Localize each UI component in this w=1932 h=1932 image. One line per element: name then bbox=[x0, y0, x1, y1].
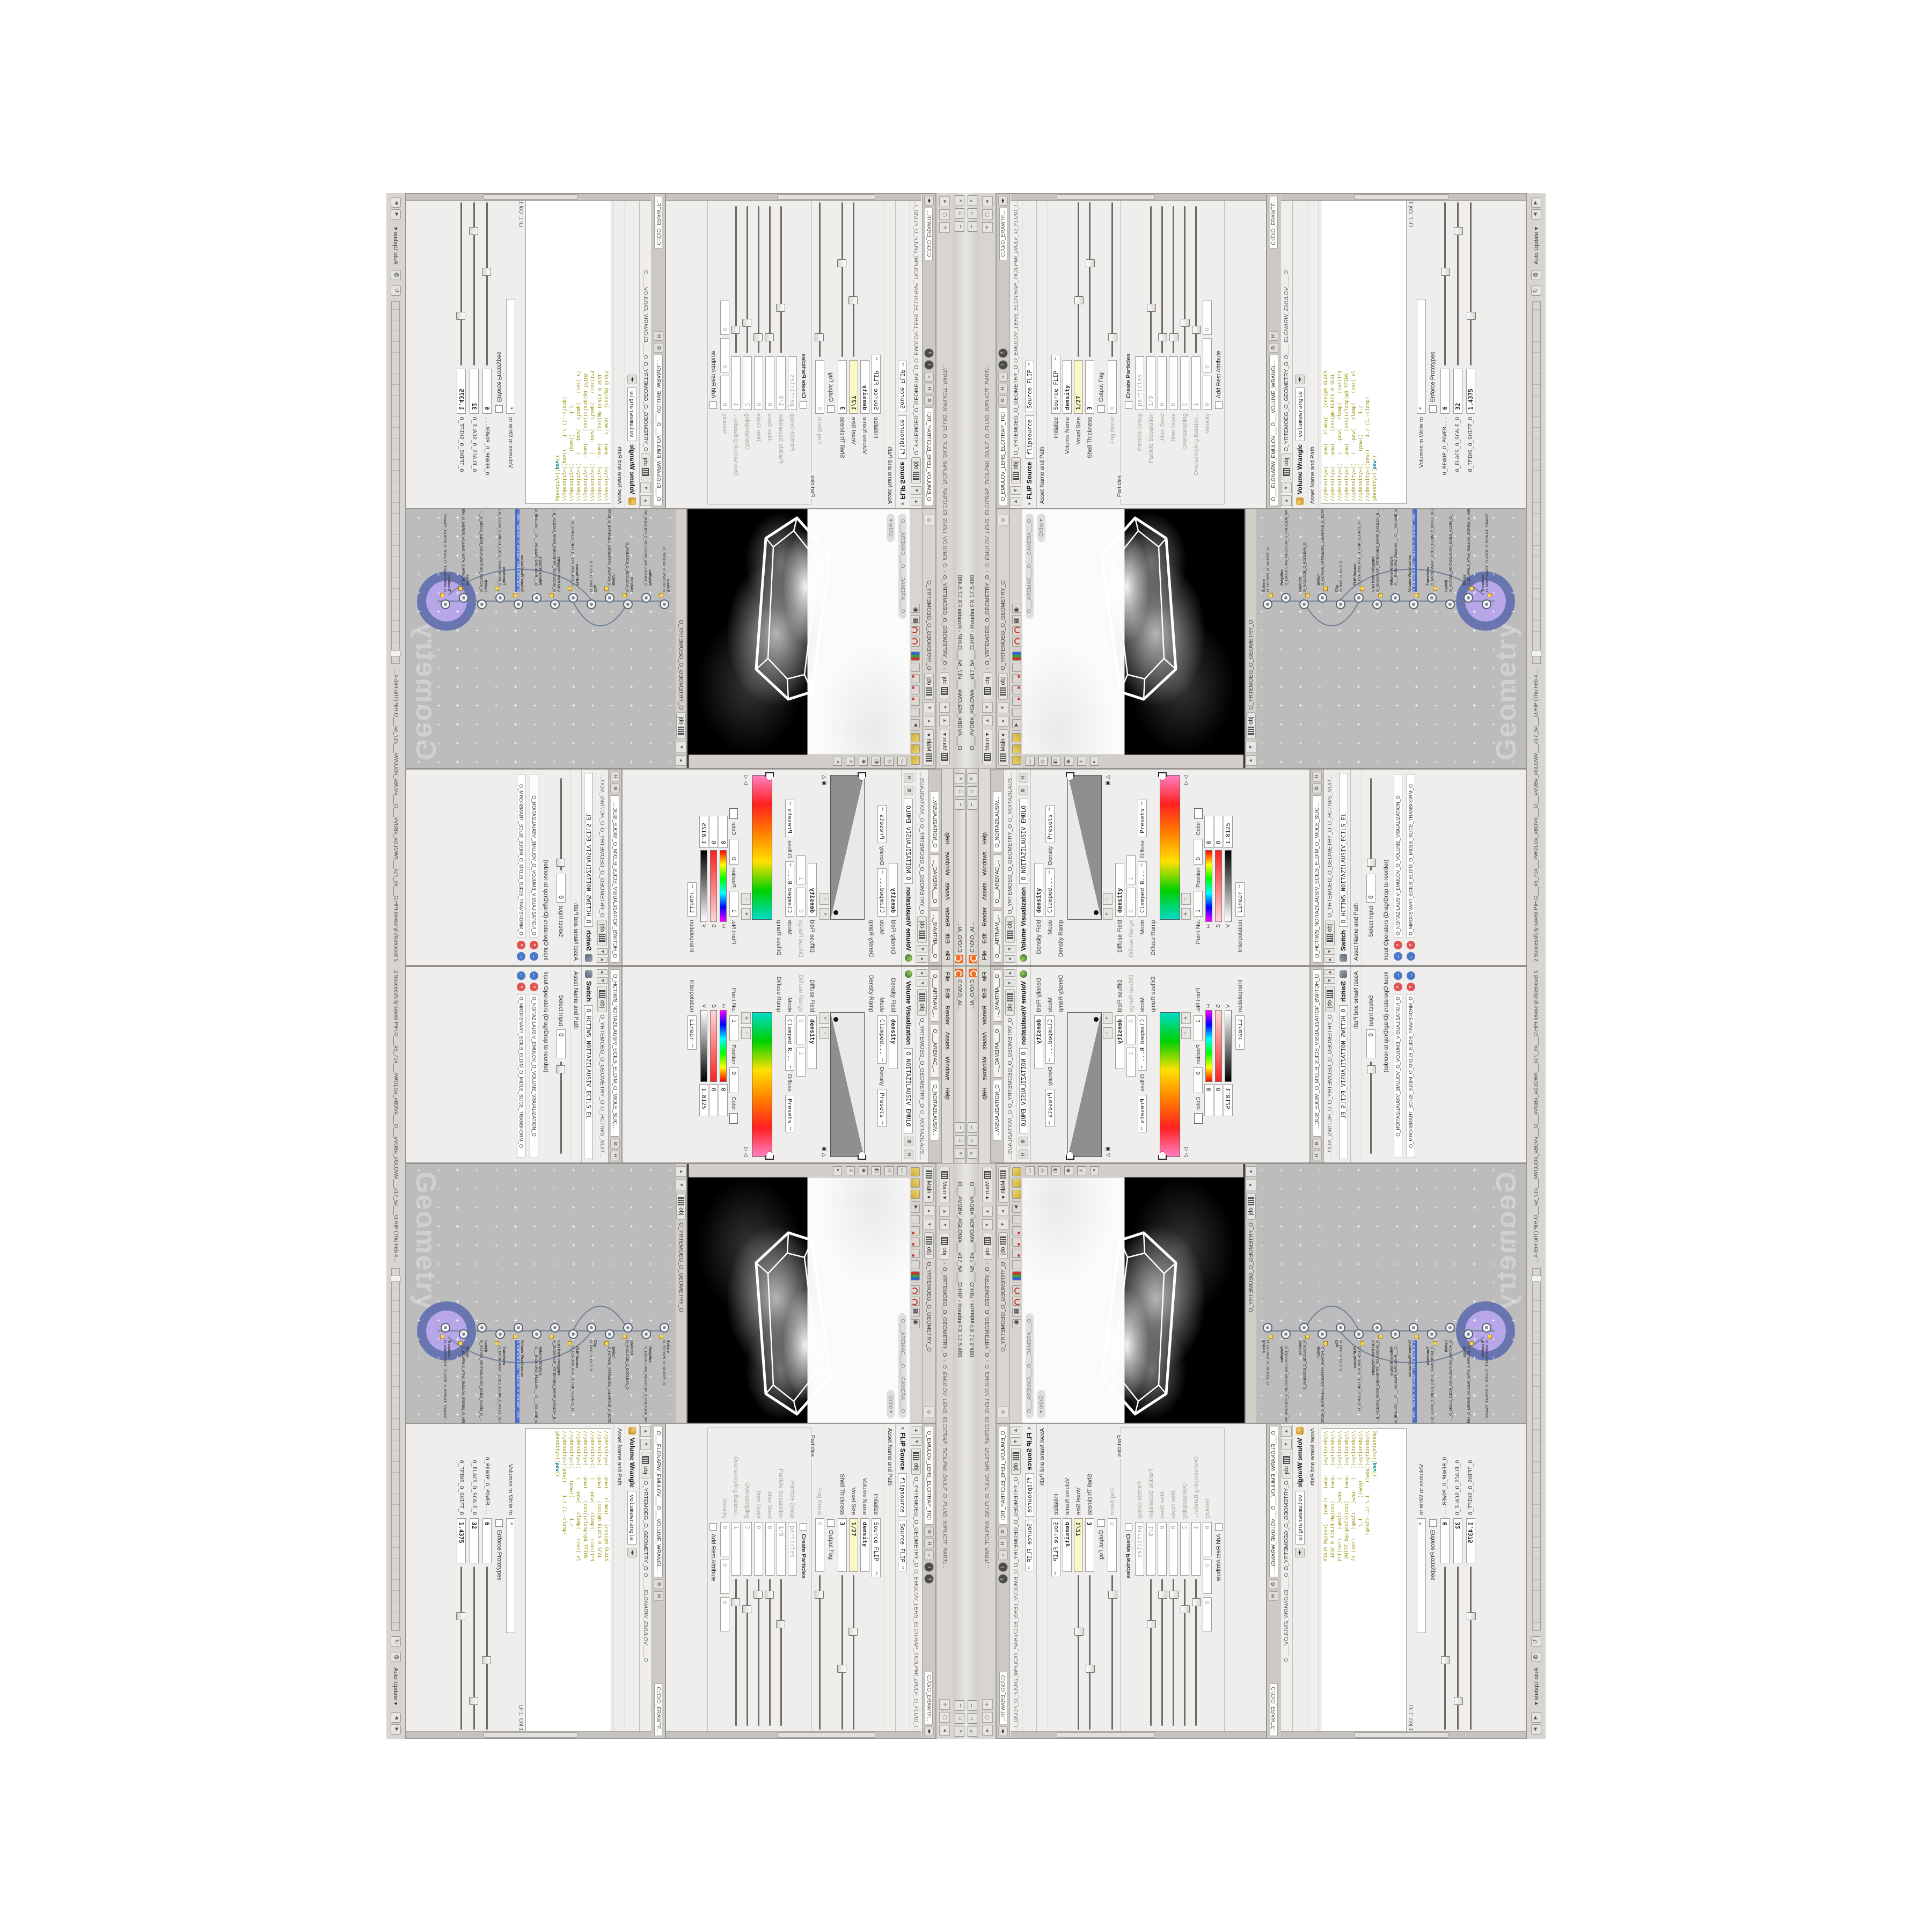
hue-input[interactable]: 0 bbox=[719, 816, 728, 848]
nav-up-icon[interactable]: ▲ bbox=[924, 1205, 934, 1216]
oversampling-input[interactable]: 2 bbox=[1180, 356, 1189, 410]
power-input[interactable]: 6 bbox=[1440, 1518, 1450, 1563]
menu-help[interactable]: Help bbox=[982, 832, 988, 845]
network-node[interactable] bbox=[1318, 593, 1327, 603]
voxel-size-input[interactable]: 1/27 bbox=[1074, 1518, 1083, 1572]
nav-up-icon[interactable]: ▲ bbox=[940, 1206, 950, 1217]
ramp-marker-icon[interactable]: ▣ △ bbox=[822, 1146, 828, 1157]
menu-windows[interactable]: Windows bbox=[944, 852, 950, 876]
ramp-marker-handle[interactable] bbox=[858, 1151, 866, 1160]
node-name-field[interactable]: volumewrangle bbox=[628, 1491, 637, 1545]
velocity-y-input[interactable]: 0 bbox=[720, 1560, 729, 1594]
breadcrumb-node[interactable]: O_HCTIWS_NOITAZILAUSIV_ECILS_EL bbox=[599, 1107, 605, 1160]
menu-windows[interactable]: Windows bbox=[982, 1057, 988, 1081]
vex-snippet-editor[interactable]: //@density=( -pow( clamp( (cos(@O_ELACS_… bbox=[1321, 198, 1407, 504]
expand-icon[interactable]: ▸ bbox=[833, 757, 842, 766]
shade-flat-icon[interactable] bbox=[1012, 1179, 1021, 1188]
menu-edit[interactable]: Edit bbox=[982, 933, 988, 943]
collapse-icon[interactable]: ◄ bbox=[982, 196, 993, 207]
tab-camera[interactable]: O___AREMAC_... bbox=[993, 1024, 1001, 1077]
oversampling-input[interactable]: 2 bbox=[743, 356, 752, 410]
fog-boost-slider[interactable] bbox=[1111, 202, 1113, 357]
tab-volume-wrangle[interactable]: O___ELGNARW_EMULOV___O___VOLUME_WRANGL..… bbox=[654, 1426, 663, 1577]
oversampling-bandwidth-input[interactable]: 1 bbox=[731, 1522, 741, 1576]
scale-slider[interactable] bbox=[1457, 1567, 1459, 1730]
tab-mantra[interactable]: O___ARTNAM_... bbox=[931, 969, 939, 1022]
breadcrumb-geometry[interactable]: O_YRTEMOEG_O_GEOMETRY_O bbox=[1248, 620, 1254, 710]
refresh-icon[interactable]: ↻ bbox=[1531, 1636, 1541, 1646]
point-number-input[interactable]: 1 bbox=[1194, 1015, 1203, 1041]
network-node[interactable] bbox=[587, 599, 596, 609]
input-operator-name[interactable]: O_MROFSNART_ECILS_ELDIM_O_MIDLE_SLICE_TR… bbox=[1407, 774, 1415, 938]
playbar-timeline[interactable] bbox=[392, 301, 400, 664]
jitter-seed-slider[interactable] bbox=[1161, 206, 1163, 353]
ramp-marker-icon[interactable]: ▷ ◁ bbox=[1183, 775, 1189, 785]
save-path-field[interactable]: C:/O/O_ERAWTF... bbox=[925, 208, 933, 260]
color-swatch[interactable] bbox=[730, 1113, 738, 1124]
breadcrumb-geometry[interactable]: O_YRTEMOEG_O_GEOMETRY_O bbox=[678, 1223, 684, 1313]
menu-render[interactable]: Render bbox=[982, 907, 988, 926]
node-name-field[interactable]: O_HCTIWS_NOITAZILAUSIV_ECILS_EL bbox=[584, 1005, 594, 1159]
breadcrumb-obj[interactable]: obj bbox=[911, 1448, 921, 1475]
maximize-button[interactable]: □ bbox=[968, 208, 977, 219]
shade-wire-icon[interactable] bbox=[1012, 1190, 1021, 1199]
diffuse-range-max[interactable]: 1 bbox=[796, 855, 806, 884]
pane-menu-main[interactable]: Main ▾ bbox=[924, 729, 934, 766]
oversampling-slider[interactable] bbox=[1184, 1579, 1185, 1726]
menu-assets[interactable]: Assets bbox=[944, 1032, 950, 1050]
select-arrow-icon[interactable]: ➤ bbox=[1012, 719, 1021, 728]
display-flag-icon[interactable] bbox=[1488, 593, 1492, 597]
spinner-icon[interactable]: ◂▸ bbox=[1295, 1548, 1305, 1557]
play-backward-icon[interactable]: ◄ bbox=[391, 209, 401, 219]
breadcrumb-node[interactable]: O_NOITAZILAUSIV_EMULO bbox=[919, 1110, 925, 1160]
spiral-icon[interactable]: ◉ bbox=[1064, 1166, 1073, 1175]
density-presets-dropdown[interactable]: Presets◂▸ bbox=[877, 805, 887, 843]
power-slider[interactable] bbox=[1444, 1567, 1446, 1730]
camera-lock-icon[interactable]: ◉ bbox=[1012, 1319, 1021, 1328]
value-slider[interactable] bbox=[701, 1010, 708, 1082]
pane-divider[interactable] bbox=[996, 1423, 1526, 1424]
diffuse-ramp-widget[interactable] bbox=[1160, 1012, 1180, 1157]
display-flag-icon[interactable] bbox=[1305, 593, 1309, 597]
expand-icon[interactable]: ▸ bbox=[1090, 757, 1099, 766]
render-view-icon[interactable]: ▦ bbox=[911, 615, 920, 624]
color-swatch[interactable] bbox=[1194, 808, 1203, 819]
particle-group-input[interactable]: particles bbox=[788, 1522, 797, 1576]
question-icon[interactable]: ? bbox=[924, 1574, 934, 1584]
play-backward-icon[interactable]: ◄ bbox=[1531, 209, 1541, 219]
spiral-icon[interactable]: ◉ bbox=[1064, 757, 1073, 766]
scrollbar-grip[interactable] bbox=[777, 1732, 875, 1738]
reorder-icon[interactable]: ← bbox=[530, 952, 538, 961]
save-path-field[interactable]: C:/O/O_ERAWTF... bbox=[655, 1684, 663, 1736]
minimize-button[interactable]: – bbox=[968, 221, 977, 232]
gear-icon[interactable]: ⚙ bbox=[610, 1139, 620, 1148]
target-icon[interactable]: ◎ bbox=[998, 1407, 1008, 1417]
node-name-field[interactable]: volumewrangle bbox=[1296, 1491, 1305, 1545]
breadcrumb-geometry[interactable]: O_YRTEMOEG_O_GEOMETRY_O bbox=[984, 1267, 991, 1357]
spiral-icon[interactable]: ◉ bbox=[859, 757, 868, 766]
ramp-delete-button[interactable]: × bbox=[1103, 893, 1113, 905]
close-button[interactable]: × bbox=[955, 1148, 964, 1159]
particle-separation-slider[interactable] bbox=[780, 1579, 782, 1726]
power-input[interactable]: 6 bbox=[1440, 369, 1450, 414]
network-node[interactable] bbox=[550, 1323, 560, 1333]
tab-mantra[interactable]: O___ARTNAM_... bbox=[993, 910, 1001, 963]
enforce-prototypes-checkbox[interactable] bbox=[496, 405, 503, 413]
initialize-dropdown[interactable]: Source FLIP◂▸ bbox=[872, 355, 881, 414]
fog-boost-input[interactable]: 0 bbox=[815, 1518, 824, 1572]
ramp-marker-icon[interactable]: ▷ ◁ bbox=[743, 775, 749, 785]
breadcrumb-obj[interactable]: obj bbox=[1011, 1448, 1021, 1475]
auto-update-selector[interactable]: Auto Update ▾ bbox=[1533, 227, 1540, 265]
scrollbar-grip[interactable] bbox=[1057, 194, 1155, 200]
saturation-input[interactable]: 0 bbox=[1214, 816, 1223, 848]
pane-divider[interactable] bbox=[406, 508, 936, 509]
enforce-prototypes-checkbox[interactable] bbox=[496, 1519, 503, 1527]
particle-separation-input[interactable]: 1/9 bbox=[777, 1522, 786, 1576]
particle-separation-input[interactable]: 1/9 bbox=[1146, 356, 1155, 410]
hue-slider[interactable] bbox=[720, 1010, 727, 1082]
saturation-slider[interactable] bbox=[711, 850, 718, 922]
initialize-dropdown[interactable]: Source FLIP◂▸ bbox=[872, 1518, 881, 1577]
camera-selector-pill[interactable]: O___AREMAC___O___CAMERA___O bbox=[898, 1313, 906, 1418]
pin-icon[interactable]: ✛ bbox=[982, 1699, 993, 1710]
rotate-tool-icon[interactable] bbox=[911, 1238, 920, 1247]
breadcrumb-obj[interactable]: obj bbox=[1005, 916, 1015, 943]
interpolation-dropdown[interactable]: Linear◂▸ bbox=[687, 882, 697, 917]
shade-mode-icon[interactable] bbox=[1012, 756, 1021, 765]
minimize-button[interactable]: – bbox=[955, 1122, 964, 1133]
nav-up-icon[interactable]: ▲ bbox=[1281, 1426, 1292, 1437]
nav-down-icon[interactable]: ▼ bbox=[676, 742, 686, 752]
nav-up-icon[interactable]: ▲ bbox=[640, 495, 651, 506]
pin-icon[interactable]: ✛ bbox=[982, 222, 993, 233]
breadcrumb-geometry[interactable]: O_YRTEMOEG_O_GEOMETRY_O bbox=[926, 1262, 932, 1352]
nav-up-icon[interactable]: ▲ bbox=[911, 1426, 921, 1435]
breadcrumb-obj[interactable]: obj bbox=[1011, 457, 1021, 484]
tab-switch[interactable]: O_HCTIWS_NOITAZILAUSIV_ECILS_ELDIM_O_MID… bbox=[1313, 969, 1321, 1137]
breadcrumb-geometry[interactable]: O_YRTEMOEG_O_GEOMETRY_O bbox=[1327, 828, 1333, 918]
input-operator-name[interactable]: O_MROFSNART_ECILS_ELDIM_O_MIDLE_SLICE_TR… bbox=[517, 994, 525, 1158]
node-name-field[interactable]: flipsource bbox=[1025, 415, 1034, 458]
breadcrumb-obj[interactable]: obj bbox=[1282, 453, 1291, 480]
render-view-icon[interactable]: ▦ bbox=[911, 1308, 920, 1317]
hue-slider[interactable] bbox=[1205, 850, 1212, 922]
breadcrumb-geometry[interactable]: O_YRTEMOEG_O_GEOMETRY_O bbox=[942, 1267, 948, 1357]
create-particles-checkbox[interactable] bbox=[800, 401, 808, 409]
gear-icon[interactable]: ⚙ bbox=[1019, 1137, 1028, 1146]
view-tool-icon[interactable]: ▭ bbox=[897, 757, 906, 766]
display-flag-icon[interactable] bbox=[458, 1341, 463, 1345]
hue-slider[interactable] bbox=[720, 850, 727, 922]
ramp-marker-handle[interactable] bbox=[1066, 772, 1074, 781]
point-number-input[interactable]: 1 bbox=[729, 891, 738, 917]
network-canvas[interactable]: Geometry +++++++++++++++++++++++++++++++… bbox=[1256, 509, 1526, 768]
breadcrumb-geometry[interactable]: O_YRTEMOEG_O_GEOMETRY_O bbox=[642, 362, 649, 452]
select-input-slider[interactable] bbox=[1370, 1062, 1372, 1154]
add-rest-checkbox[interactable] bbox=[1215, 401, 1223, 409]
scale-slider[interactable] bbox=[474, 1567, 475, 1730]
voxel-size-slider[interactable] bbox=[1078, 1575, 1079, 1730]
snap-grid-icon[interactable] bbox=[911, 626, 920, 635]
output-fog-checkbox[interactable] bbox=[828, 1519, 835, 1527]
handles-icon[interactable]: ◎ bbox=[884, 757, 894, 766]
shift-slider[interactable] bbox=[461, 1567, 463, 1730]
velocity-x-input[interactable]: 0 bbox=[720, 1522, 729, 1556]
minimize-button[interactable]: – bbox=[955, 799, 964, 810]
tab-camera[interactable]: O___AREMAC_... bbox=[993, 854, 1001, 908]
breadcrumb-obj[interactable]: obj bbox=[597, 920, 607, 947]
gear-icon[interactable]: ⚙ bbox=[1312, 1139, 1322, 1148]
question-icon[interactable]: ? bbox=[998, 1574, 1008, 1584]
snap-grid-icon[interactable] bbox=[1012, 1297, 1021, 1306]
breadcrumb-obj[interactable]: obj bbox=[998, 673, 1008, 700]
vertical-scrollbar[interactable] bbox=[406, 1731, 651, 1738]
camera-selector-pill[interactable]: O___AREMAC___O___CAMERA___O bbox=[898, 514, 906, 619]
diffuse-range-min[interactable]: 0 bbox=[1126, 1015, 1136, 1044]
nav-up-icon[interactable]: ▲ bbox=[676, 755, 686, 766]
ramp-delete-button[interactable]: × bbox=[1181, 893, 1191, 905]
remove-icon[interactable]: × bbox=[517, 941, 525, 949]
breadcrumb-obj[interactable]: obj bbox=[940, 672, 950, 699]
search-icon[interactable]: ⌕ bbox=[998, 372, 1008, 382]
cache-icon[interactable]: ◍ bbox=[391, 270, 401, 280]
maximize-button[interactable]: □ bbox=[955, 1135, 964, 1146]
shade-flat-icon[interactable] bbox=[911, 1179, 920, 1188]
breadcrumb-obj[interactable]: obj bbox=[597, 986, 607, 1013]
ramp-marker-handle[interactable] bbox=[1158, 1151, 1167, 1160]
enforce-prototypes-checkbox[interactable] bbox=[1429, 405, 1437, 413]
menu-help[interactable]: Help bbox=[982, 1087, 988, 1100]
velocity-z-input[interactable]: 0 bbox=[1203, 1597, 1212, 1631]
node-name-field[interactable]: O_HCTIWS_NOITAZILAUSIV_ECILS_EL bbox=[1339, 1005, 1348, 1159]
remove-icon[interactable]: × bbox=[517, 983, 525, 991]
vertical-scrollbar[interactable] bbox=[1011, 1731, 1266, 1738]
breadcrumb-geometry[interactable]: O_YRTEMOEG_O_GEOMETRY_O bbox=[599, 828, 605, 918]
shell-thickness-slider[interactable] bbox=[841, 1575, 843, 1730]
shell-thickness-slider[interactable] bbox=[1089, 1575, 1091, 1730]
select-input-slider[interactable] bbox=[1370, 778, 1372, 870]
playbar-timeline[interactable] bbox=[1532, 301, 1541, 664]
density-mode-dropdown[interactable]: Clamped...◂▸ bbox=[1045, 868, 1055, 917]
collapse-icon[interactable]: ◄ bbox=[940, 196, 950, 207]
scale-input[interactable]: 32 bbox=[470, 369, 479, 414]
jitter-scale-slider[interactable] bbox=[758, 206, 759, 353]
velocity-y-input[interactable]: 0 bbox=[720, 338, 729, 372]
nav-down-icon[interactable]: ▼ bbox=[940, 1219, 950, 1230]
camera-selector-pill[interactable]: O___AREMAC___O___CAMERA___O bbox=[1026, 514, 1034, 619]
refresh-icon[interactable]: ↻ bbox=[391, 286, 401, 296]
nav-down-icon[interactable]: ▼ bbox=[1246, 742, 1256, 752]
menu-render[interactable]: Render bbox=[944, 1006, 950, 1025]
breadcrumb-geometry[interactable]: O_YRTEMOEG_O_GEOMETRY_O bbox=[1000, 1262, 1006, 1352]
play-forward-icon[interactable]: ► bbox=[1531, 197, 1541, 208]
display-flag-icon[interactable] bbox=[458, 587, 463, 591]
breadcrumb-obj[interactable]: obj bbox=[917, 916, 927, 943]
snap-magnet-icon[interactable] bbox=[911, 1285, 920, 1294]
shift-input[interactable]: 1.4375 bbox=[457, 1518, 466, 1563]
breadcrumb-node[interactable]: O_HCTIWS_NOITAZILAUSIV_ECILS_EL bbox=[1327, 1107, 1333, 1160]
velocity-x-input[interactable]: 0 bbox=[720, 376, 729, 410]
nav-down-icon[interactable]: ▼ bbox=[1005, 979, 1015, 986]
menu-edit[interactable]: Edit bbox=[982, 989, 988, 999]
breadcrumb-geometry[interactable]: O_YRTEMOEG_O_GEOMETRY_O bbox=[913, 1477, 919, 1567]
position-input[interactable]: 0 bbox=[1194, 839, 1203, 865]
breadcrumb-geometry[interactable]: O_YRTEMOEG_O_GEOMETRY_O bbox=[919, 1018, 925, 1108]
breadcrumb-obj[interactable]: obj bbox=[1325, 986, 1335, 1013]
initialize-dropdown[interactable]: Source FLIP◂▸ bbox=[1051, 355, 1060, 414]
move-tool-icon[interactable] bbox=[911, 1226, 920, 1235]
diffuse-range-min[interactable]: 0 bbox=[796, 1015, 806, 1044]
vertical-scrollbar[interactable] bbox=[1011, 194, 1266, 201]
ramp-add-button[interactable]: + bbox=[1103, 1012, 1113, 1024]
play-forward-icon[interactable]: ► bbox=[391, 197, 401, 208]
network-node[interactable] bbox=[1482, 599, 1491, 609]
network-node[interactable] bbox=[1427, 593, 1437, 603]
breadcrumb-geometry[interactable]: O_YRTEMOEG_O_GEOMETRY_O bbox=[1283, 362, 1290, 452]
view-mode-pill[interactable]: Ortho ▾ bbox=[1037, 1390, 1045, 1418]
nav-up-icon[interactable]: ▲ bbox=[1324, 969, 1335, 975]
nav-down-icon[interactable]: ▼ bbox=[1011, 486, 1021, 495]
display-flag-icon[interactable] bbox=[1323, 587, 1328, 591]
diffuse-ramp-widget[interactable] bbox=[752, 1012, 772, 1157]
breadcrumb-node[interactable]: O_HCTIWS_NOITAZILAUSIV_ECILS_EL bbox=[599, 772, 605, 825]
maximize-button[interactable]: □ bbox=[968, 1713, 977, 1724]
breadcrumb-obj[interactable]: obj bbox=[917, 989, 927, 1016]
saturation-slider[interactable] bbox=[1215, 1010, 1222, 1082]
remove-icon[interactable]: × bbox=[1407, 983, 1415, 991]
input-operator-name[interactable]: O_NOITAZILAUSIV_EMULOV_O_VOLUME_VISUALIZ… bbox=[1394, 774, 1402, 938]
spinner-icon[interactable]: ◂▸ bbox=[1295, 375, 1305, 384]
menu-help[interactable]: Help bbox=[944, 1087, 950, 1100]
oversampling-input[interactable]: 2 bbox=[1180, 1522, 1189, 1576]
network-node[interactable] bbox=[1463, 1329, 1473, 1339]
nav-up-icon[interactable]: ▲ bbox=[640, 1426, 651, 1437]
tab-switch[interactable]: O_HCTIWS_NOITAZILAUSIV_ECILS_ELDIM_O_MID… bbox=[611, 969, 619, 1137]
playbar-handle[interactable] bbox=[391, 650, 401, 656]
density-field-input[interactable]: density bbox=[889, 863, 898, 917]
collapse-arrow-icon[interactable]: ▾ bbox=[1027, 1427, 1033, 1430]
nav-down-icon[interactable]: ▼ bbox=[597, 977, 608, 983]
camera-lock-icon[interactable]: ◉ bbox=[911, 604, 920, 613]
vertical-scrollbar[interactable] bbox=[666, 1731, 921, 1738]
nav-up-icon[interactable]: ▲ bbox=[982, 715, 993, 726]
vertical-scrollbar[interactable] bbox=[666, 194, 921, 201]
tab-mantra[interactable]: O___ARTNAM_... bbox=[931, 910, 939, 963]
rotate-tool-icon[interactable] bbox=[1012, 685, 1021, 694]
ramp-add-button[interactable]: + bbox=[1181, 1012, 1191, 1024]
render-view-icon[interactable]: ▦ bbox=[1012, 1308, 1021, 1317]
breadcrumb-obj[interactable]: obj bbox=[676, 1193, 686, 1220]
tab-switch[interactable]: O_HCTIWS_NOITAZILAUSIV_ECILS_ELDIM_O_MID… bbox=[1313, 795, 1321, 963]
lasso-icon[interactable] bbox=[1012, 1215, 1021, 1224]
minimize-button[interactable]: – bbox=[955, 221, 964, 232]
maximize-button[interactable]: □ bbox=[955, 1713, 964, 1724]
scale-input[interactable]: 32 bbox=[470, 1518, 479, 1563]
auto-update-selector[interactable]: Auto Update ▾ bbox=[392, 1667, 399, 1705]
scale-tool-icon[interactable] bbox=[911, 1249, 920, 1258]
display-flag-icon[interactable] bbox=[1269, 593, 1273, 597]
display-flag-icon[interactable] bbox=[1415, 593, 1419, 597]
particle-separation-input[interactable]: 1/9 bbox=[777, 356, 786, 410]
pane-menu-main[interactable]: Main ▾ bbox=[940, 729, 950, 765]
fog-boost-slider[interactable] bbox=[1111, 1575, 1113, 1730]
particle-separation-slider[interactable] bbox=[1150, 1579, 1152, 1726]
spinner-icon[interactable]: ◂▸ bbox=[627, 375, 637, 384]
density-presets-dropdown[interactable]: Presets◂▸ bbox=[1045, 1089, 1055, 1126]
breadcrumb-obj[interactable]: obj bbox=[998, 1232, 1008, 1259]
nav-down-icon[interactable]: ▼ bbox=[1005, 945, 1015, 953]
diffuse-field-input[interactable]: density bbox=[808, 863, 817, 917]
display-flag-icon[interactable] bbox=[1305, 1335, 1309, 1339]
pin-icon[interactable]: ✛ bbox=[940, 1699, 950, 1710]
remove-icon[interactable]: × bbox=[1394, 941, 1402, 949]
layout-icon[interactable]: ▢ bbox=[940, 1712, 950, 1723]
color-swatch[interactable] bbox=[730, 808, 738, 819]
breadcrumb-node[interactable]: O____ELGNARW_EMULOV____O bbox=[1283, 270, 1290, 360]
jitter-scale-slider[interactable] bbox=[1173, 206, 1174, 353]
network-node[interactable] bbox=[605, 593, 614, 603]
pane-menu-main[interactable]: Main ▾ bbox=[924, 1166, 934, 1203]
volume-name-input[interactable]: density bbox=[1063, 360, 1072, 414]
display-flag-icon[interactable] bbox=[1360, 587, 1364, 591]
nav-up-icon[interactable]: ▲ bbox=[1011, 497, 1021, 506]
close-button[interactable]: × bbox=[955, 773, 964, 784]
shell-thickness-input[interactable]: 3 bbox=[1085, 360, 1094, 414]
oversampling-bandwidth-input[interactable]: 1 bbox=[731, 356, 741, 410]
reorder-icon[interactable]: ← bbox=[530, 971, 538, 980]
cache-icon[interactable]: ◍ bbox=[1531, 1652, 1541, 1662]
vex-snippet-editor[interactable]: //@density=( -pow( clamp( (cos(@O_ELACS_… bbox=[525, 1428, 611, 1734]
diffuse-field-input[interactable]: density bbox=[1115, 1015, 1124, 1069]
ramp-delete-button[interactable]: × bbox=[819, 1027, 829, 1039]
nav-up-icon[interactable]: ▲ bbox=[998, 716, 1008, 727]
shell-thickness-slider[interactable] bbox=[841, 202, 843, 357]
network-node[interactable] bbox=[1391, 1329, 1400, 1339]
help-icon[interactable]: H bbox=[610, 1151, 620, 1160]
oversampling-bandwidth-slider[interactable] bbox=[735, 206, 737, 353]
network-node[interactable] bbox=[1445, 1323, 1455, 1333]
point-number-input[interactable]: 1 bbox=[1194, 891, 1203, 917]
volume-name-input[interactable]: density bbox=[860, 1518, 869, 1572]
network-node[interactable] bbox=[623, 599, 633, 609]
ramp-marker-handle[interactable] bbox=[765, 1151, 774, 1160]
save-path-field[interactable]: C:/O/O_ERAWTF... bbox=[655, 196, 663, 248]
shade-mode-icon[interactable] bbox=[911, 756, 920, 765]
network-node[interactable] bbox=[660, 599, 669, 609]
ramp-delete-button[interactable]: × bbox=[741, 893, 751, 905]
display-flag-icon[interactable] bbox=[623, 1335, 627, 1339]
tab-flip-source[interactable]: O_EMULOV_LEHS_ELCITRAP_TICI bbox=[925, 407, 933, 506]
voxel-size-slider[interactable] bbox=[853, 1575, 854, 1730]
jitter-seed-slider[interactable] bbox=[1161, 1579, 1163, 1726]
tab-visualization[interactable]: O_NOITAZILAUSIV... bbox=[931, 792, 939, 852]
oversampling-slider[interactable] bbox=[747, 206, 748, 353]
remove-icon[interactable]: × bbox=[1407, 941, 1415, 949]
jitter-seed-input[interactable]: 0 bbox=[765, 1522, 774, 1576]
network-node[interactable] bbox=[1281, 1329, 1291, 1339]
pane-menu-main[interactable]: Main ▾ bbox=[982, 729, 992, 765]
display-flag-icon[interactable] bbox=[1415, 1335, 1419, 1339]
remove-icon[interactable]: × bbox=[1394, 983, 1402, 991]
jitter-seed-input[interactable]: 0 bbox=[1158, 1522, 1167, 1576]
tab-volume-wrangle[interactable]: O___ELGNARW_EMULOV___O___VOLUME_WRANGL..… bbox=[1269, 355, 1278, 506]
node-name-field[interactable]: O_NOITAZILAUSIV_EMULO bbox=[904, 1048, 913, 1133]
density-mode-dropdown[interactable]: Clamped...◂▸ bbox=[1045, 1015, 1055, 1064]
jitter-scale-slider[interactable] bbox=[758, 1579, 759, 1726]
